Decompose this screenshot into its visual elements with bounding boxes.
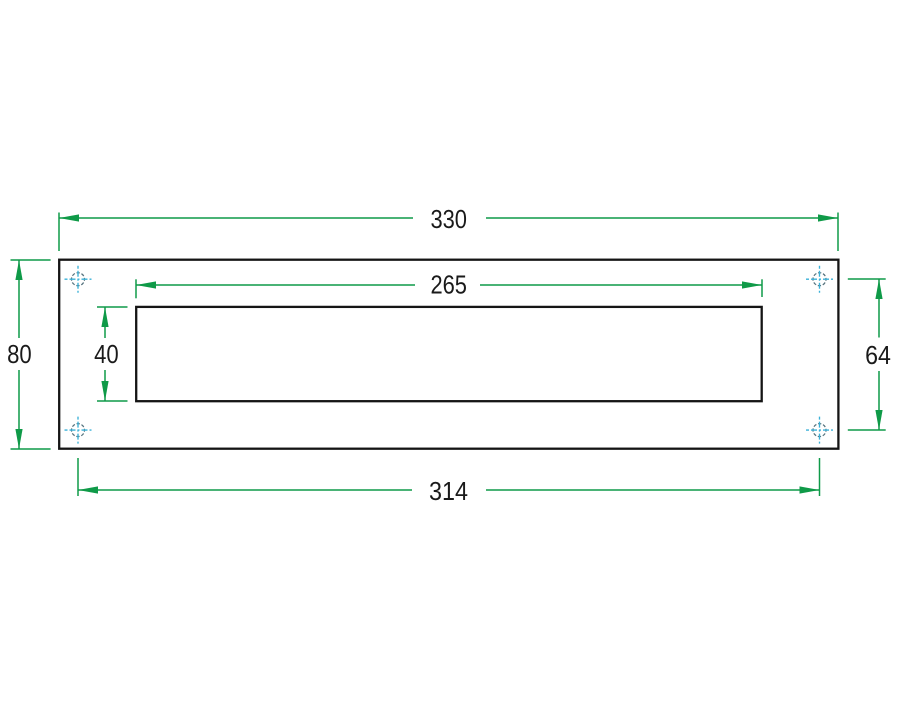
svg-text:314: 314 <box>429 476 468 506</box>
svg-text:64: 64 <box>865 340 891 370</box>
svg-text:330: 330 <box>430 204 467 234</box>
svg-text:80: 80 <box>7 339 32 369</box>
svg-text:40: 40 <box>94 339 119 369</box>
svg-text:265: 265 <box>430 270 467 300</box>
